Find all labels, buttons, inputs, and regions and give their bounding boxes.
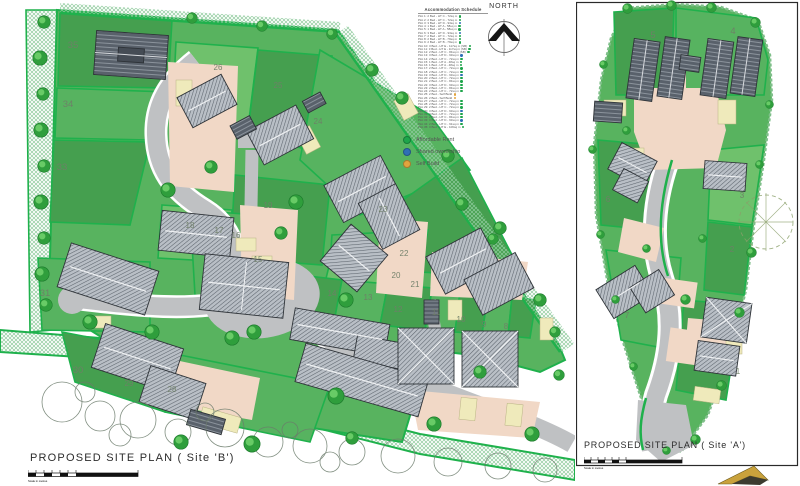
tenure-dot: [460, 71, 462, 73]
tenure-dot: [460, 100, 462, 102]
tenure-dot: [459, 22, 461, 24]
plot-number-21: 21: [411, 280, 420, 289]
tenure-dot: [460, 77, 462, 79]
site-a-title: PROPOSED SITE PLAN ( Site 'A'): [584, 440, 746, 450]
accommodation-schedule-rows: Plot 1: 2 Bed - HT C - 72sq mPlot 2: 2 B…: [418, 15, 488, 129]
plot-number-9: 9: [482, 320, 487, 329]
plot-number-7: 7: [625, 311, 630, 320]
tenure-dot: [460, 123, 462, 125]
site-b-drawing: 3534333130292826252423191817161522202114…: [0, 0, 575, 486]
site-b-scale-bar: Scale in metres: [28, 468, 158, 484]
plot-number-12: 12: [394, 305, 403, 314]
tenure-dot: [460, 67, 462, 69]
tenure-dot: [460, 119, 462, 121]
tenure-dot: [460, 61, 462, 63]
plot-number-26: 26: [214, 63, 223, 72]
plot-number-19: 19: [264, 201, 273, 210]
north-label: NORTH: [481, 3, 527, 10]
tenure-dot: [460, 87, 462, 89]
site-a-scale-bar: Scale in metres: [584, 455, 704, 471]
tenure-dot: [460, 103, 462, 105]
plot-number-11: 11: [432, 308, 441, 317]
tenure-legend: Affordable RentShared ownershipSelf Buil…: [403, 136, 460, 172]
site-b-title: PROPOSED SITE PLAN ( Site 'B'): [30, 452, 235, 464]
tenure-dot: [460, 106, 462, 108]
plot-number-35: 35: [68, 40, 79, 51]
legend-label: Affordable Rent: [416, 137, 454, 143]
tenure-dot: [460, 58, 462, 60]
plot-number-6: 6: [606, 195, 611, 204]
plot-number-13: 13: [364, 293, 373, 302]
legend-dot: [403, 160, 411, 168]
plot-number-29: 29: [125, 379, 134, 388]
accommodation-schedule: Accommodation Schedule Plot 1: 2 Bed - H…: [418, 7, 488, 129]
plot-number-30: 30: [73, 365, 84, 376]
tenure-dot: [460, 54, 462, 56]
plot-number-23: 23: [379, 205, 388, 214]
tenure-dot: [454, 93, 456, 95]
plot-number-14: 14: [328, 289, 337, 298]
plot-number-18: 18: [186, 221, 195, 230]
tenure-dot: [460, 113, 462, 115]
tenure-dot: [460, 116, 462, 118]
tenure-dot: [460, 80, 462, 82]
plot-number-3: 3: [740, 191, 745, 200]
tenure-dot: [460, 110, 462, 112]
legend-item-1: Shared ownership: [403, 148, 460, 156]
legend-label: Shared ownership: [416, 149, 460, 155]
tenure-dot: [460, 64, 462, 66]
plot-number-20: 20: [392, 271, 401, 280]
tenure-dot: [467, 51, 469, 53]
schedule-row: Plot 35: 3 Bed - HT E - 106sq m: [418, 126, 488, 129]
tenure-dot: [462, 126, 464, 128]
legend-item-0: Affordable Rent: [403, 136, 460, 144]
plot-number-5: 5: [650, 30, 655, 41]
tenure-dot: [469, 45, 471, 47]
accommodation-schedule-title: Accommodation Schedule: [418, 7, 488, 14]
plot-number-4: 4: [730, 26, 735, 37]
tenure-dot: [459, 15, 461, 17]
plot-number-25: 25: [274, 81, 283, 90]
tenure-dot: [460, 90, 462, 92]
partial-logo-graphic: [716, 464, 786, 486]
legend-dot: [403, 136, 411, 144]
tenure-dot: [459, 19, 461, 21]
site-a-drawing: 5463271: [576, 0, 800, 486]
tenure-dot: [459, 38, 461, 40]
tenure-dot: [468, 48, 470, 50]
tenure-dot: [458, 25, 460, 27]
site-plan-sheet: 3534333130292826252423191817161522202114…: [0, 0, 800, 486]
site-b-scale-note: Scale in metres: [28, 479, 48, 483]
plot-number-28: 28: [168, 385, 177, 394]
plot-number-2: 2: [730, 245, 735, 254]
plot-number-17: 17: [215, 226, 224, 235]
site-a-scale-note: Scale in metres: [584, 466, 604, 470]
legend-label: Self Build: [416, 161, 439, 167]
tenure-dot: [459, 35, 461, 37]
plot-number-22: 22: [400, 249, 409, 258]
tenure-dot: [460, 84, 462, 86]
plot-number-1: 1: [736, 367, 741, 376]
tenure-dot: [459, 32, 461, 34]
plot-number-24: 24: [314, 117, 323, 126]
tenure-dot: [458, 28, 460, 30]
tenure-dot: [460, 74, 462, 76]
plot-number-34: 34: [63, 99, 74, 110]
plot-number-33: 33: [57, 162, 68, 173]
north-arrow: NORTH: [481, 3, 527, 58]
legend-item-2: Self Build: [403, 160, 460, 168]
plot-number-16: 16: [232, 231, 241, 240]
plot-number-10: 10: [457, 315, 466, 324]
north-arrow-icon: [481, 10, 527, 58]
legend-dot: [403, 148, 411, 156]
plot-number-15: 15: [254, 255, 263, 264]
plot-number-31: 31: [40, 288, 51, 299]
plot-number-8: 8: [504, 322, 509, 331]
